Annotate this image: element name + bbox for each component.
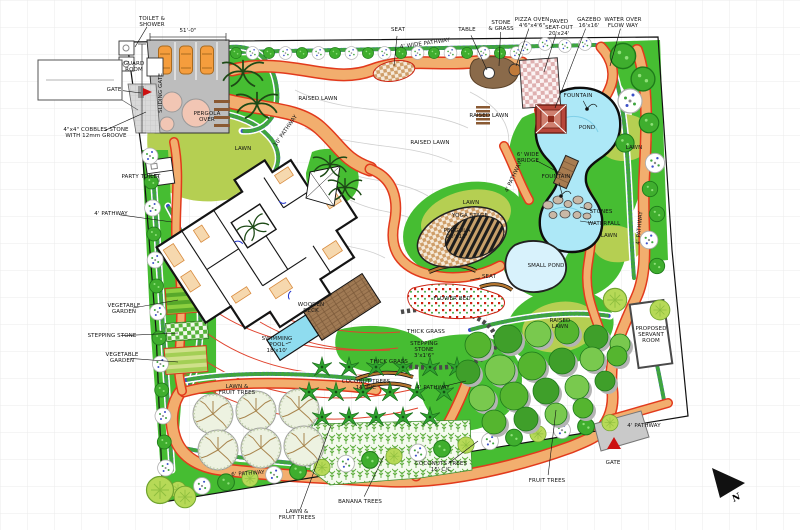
greenTree xyxy=(155,383,169,397)
flowerTree xyxy=(539,38,552,51)
small-pond xyxy=(505,241,566,292)
greenTree xyxy=(152,331,166,345)
flowerTree xyxy=(155,408,171,424)
guard-room-box xyxy=(147,58,163,76)
orchard-tree xyxy=(525,321,551,347)
greenTree xyxy=(506,429,523,446)
limeTree xyxy=(458,437,474,453)
flowerTree xyxy=(640,231,658,249)
orchard-tree xyxy=(607,346,627,366)
flowerTree xyxy=(152,356,168,372)
flowerTree xyxy=(411,47,424,60)
orchard-tree xyxy=(494,325,522,353)
site-plan-drawing: N xyxy=(0,0,800,530)
orchard-tree xyxy=(549,348,575,374)
orchard-tree xyxy=(465,332,491,358)
flowerTree xyxy=(279,47,292,60)
flowerTree xyxy=(142,148,158,164)
greenTree xyxy=(157,435,171,449)
orchard-tree xyxy=(545,403,567,425)
limeTree xyxy=(386,448,402,464)
orchard-tree xyxy=(518,352,546,380)
flowerTree xyxy=(194,478,211,495)
fruit-tree-grid xyxy=(193,389,324,470)
orchard-tree xyxy=(456,360,480,384)
flowerTree xyxy=(618,89,642,113)
vegetable-garden-bed xyxy=(164,346,208,375)
greenTree xyxy=(263,47,274,58)
greenTree xyxy=(230,47,241,58)
toilet-shower-block xyxy=(119,41,134,55)
greenTree xyxy=(428,47,439,58)
fruitTree xyxy=(198,430,238,470)
greenTree xyxy=(434,440,451,457)
fruitTree xyxy=(193,394,233,434)
fruitTree xyxy=(241,428,281,468)
pergola-table xyxy=(160,117,174,131)
flowerTree xyxy=(312,47,325,60)
greenTree xyxy=(610,43,635,68)
stepping-stone-band xyxy=(165,321,208,342)
orchard-tree xyxy=(565,375,589,399)
orchard-tree xyxy=(580,347,604,371)
orchard-tree xyxy=(485,355,515,385)
pergola-table xyxy=(162,92,182,112)
greenTree xyxy=(461,47,472,58)
gazebo-structure xyxy=(536,105,566,133)
pergola-table xyxy=(182,99,210,127)
orchard-tree xyxy=(533,378,559,404)
orchard-tree xyxy=(595,371,615,391)
greenTree xyxy=(649,258,664,273)
flowerTree xyxy=(145,200,161,216)
limeTree xyxy=(650,300,670,320)
orchard-tree xyxy=(469,385,495,411)
limeTree xyxy=(242,470,258,486)
orchard-tree xyxy=(584,325,608,349)
table-icon xyxy=(484,68,495,79)
limeTree xyxy=(602,415,618,431)
greenTree xyxy=(649,206,664,221)
flowerTree xyxy=(338,455,355,472)
flowerTree xyxy=(147,252,163,268)
greenTree xyxy=(642,181,657,196)
greenTree xyxy=(616,134,634,152)
flowerTree xyxy=(246,47,259,60)
greenTree xyxy=(144,175,158,189)
greenTree xyxy=(218,474,235,491)
limeTree xyxy=(147,477,174,504)
greenTree xyxy=(631,67,655,91)
paved-seat-out-area xyxy=(519,58,560,109)
flowerTree xyxy=(410,444,427,461)
flowerTree xyxy=(559,40,572,53)
flowerTree xyxy=(150,304,166,320)
orchard-tree xyxy=(482,410,506,434)
flowerTree xyxy=(158,460,174,476)
greenTree xyxy=(329,47,340,58)
greenTree xyxy=(362,47,373,58)
flowerTree xyxy=(645,153,664,172)
fruitTree xyxy=(236,391,276,431)
greenTree xyxy=(362,452,379,469)
limeTree xyxy=(174,486,196,508)
orchard-tree xyxy=(500,382,528,410)
pizza-oven-icon xyxy=(509,64,521,76)
flowerTree xyxy=(266,466,283,483)
greenTree xyxy=(147,227,161,241)
orchard-tree xyxy=(514,407,538,431)
flowerTree xyxy=(579,38,592,51)
landscape-master-plan: N TOILET & SHOWER51'-0"GUARD ROOMGATESLI… xyxy=(0,0,800,530)
greenTree xyxy=(639,113,659,133)
orchard-tree xyxy=(555,320,579,344)
greenTree xyxy=(296,47,307,58)
limeTree xyxy=(603,288,626,311)
flowerTree xyxy=(345,47,358,60)
greenTree xyxy=(395,47,406,58)
orchard-tree xyxy=(573,398,593,418)
greenTree xyxy=(150,279,164,293)
flowerTree xyxy=(378,47,391,60)
flowerTree xyxy=(444,47,457,60)
